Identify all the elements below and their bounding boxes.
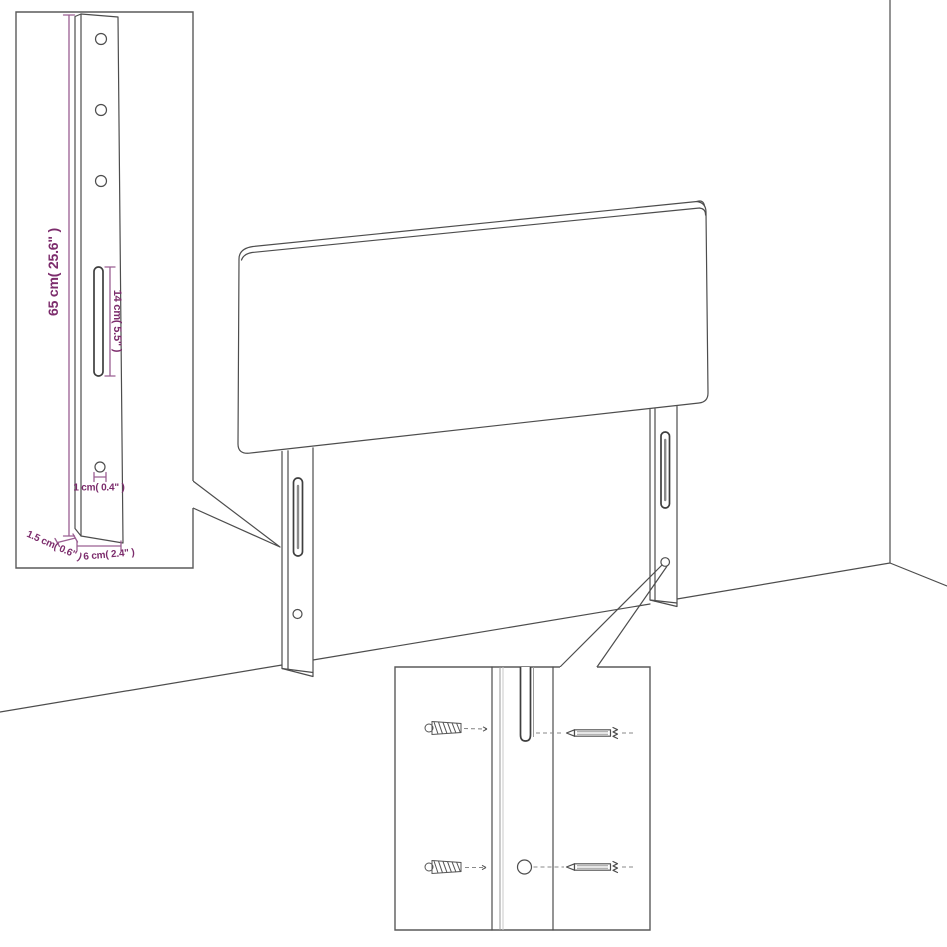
dimension-label-hole-diameter: 1 cm( 0.4" ) [73, 483, 124, 494]
right-leg-hole [661, 558, 670, 567]
panel-outline [238, 202, 708, 454]
mount-detail-inset [395, 667, 650, 930]
headboard-panel [238, 201, 708, 453]
headboard-right-leg [650, 406, 677, 606]
leg-detail-hole-lower [96, 176, 107, 187]
left-leg-hole [293, 610, 302, 619]
headboard-left-leg [282, 448, 313, 677]
mount-detail-hole [518, 860, 532, 874]
leg-detail-slot [94, 267, 103, 376]
leg-detail-hole-middle [96, 105, 107, 116]
floor-line-right [890, 563, 947, 586]
assembly-diagram: 65 cm( 25.6" ) 14 cm( 5.5" ) 1 cm( 0.4" … [0, 0, 947, 947]
diagram-line-art [0, 0, 947, 947]
leg-detail-hole-top [96, 34, 107, 45]
dimension-label-height: 65 cm( 25.6" ) [45, 228, 61, 316]
leg-detail-bottom-hole [95, 462, 105, 472]
mount-detail-slot [521, 667, 531, 741]
dimension-label-slot-length: 14 cm( 5.5" ) [111, 290, 123, 353]
leg-detail-callout-lines [193, 481, 280, 547]
